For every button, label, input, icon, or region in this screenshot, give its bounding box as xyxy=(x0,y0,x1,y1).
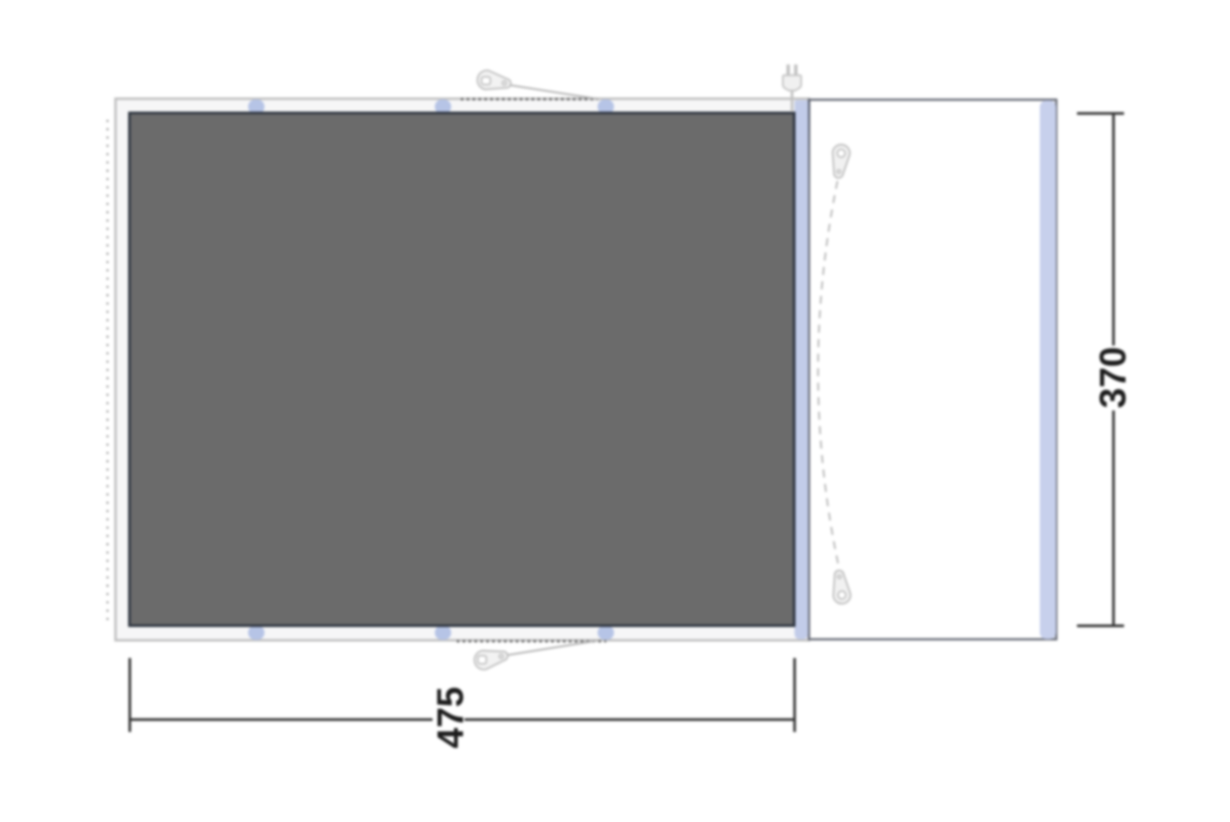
svg-text:370: 370 xyxy=(1093,347,1134,409)
svg-text:475: 475 xyxy=(430,687,471,749)
